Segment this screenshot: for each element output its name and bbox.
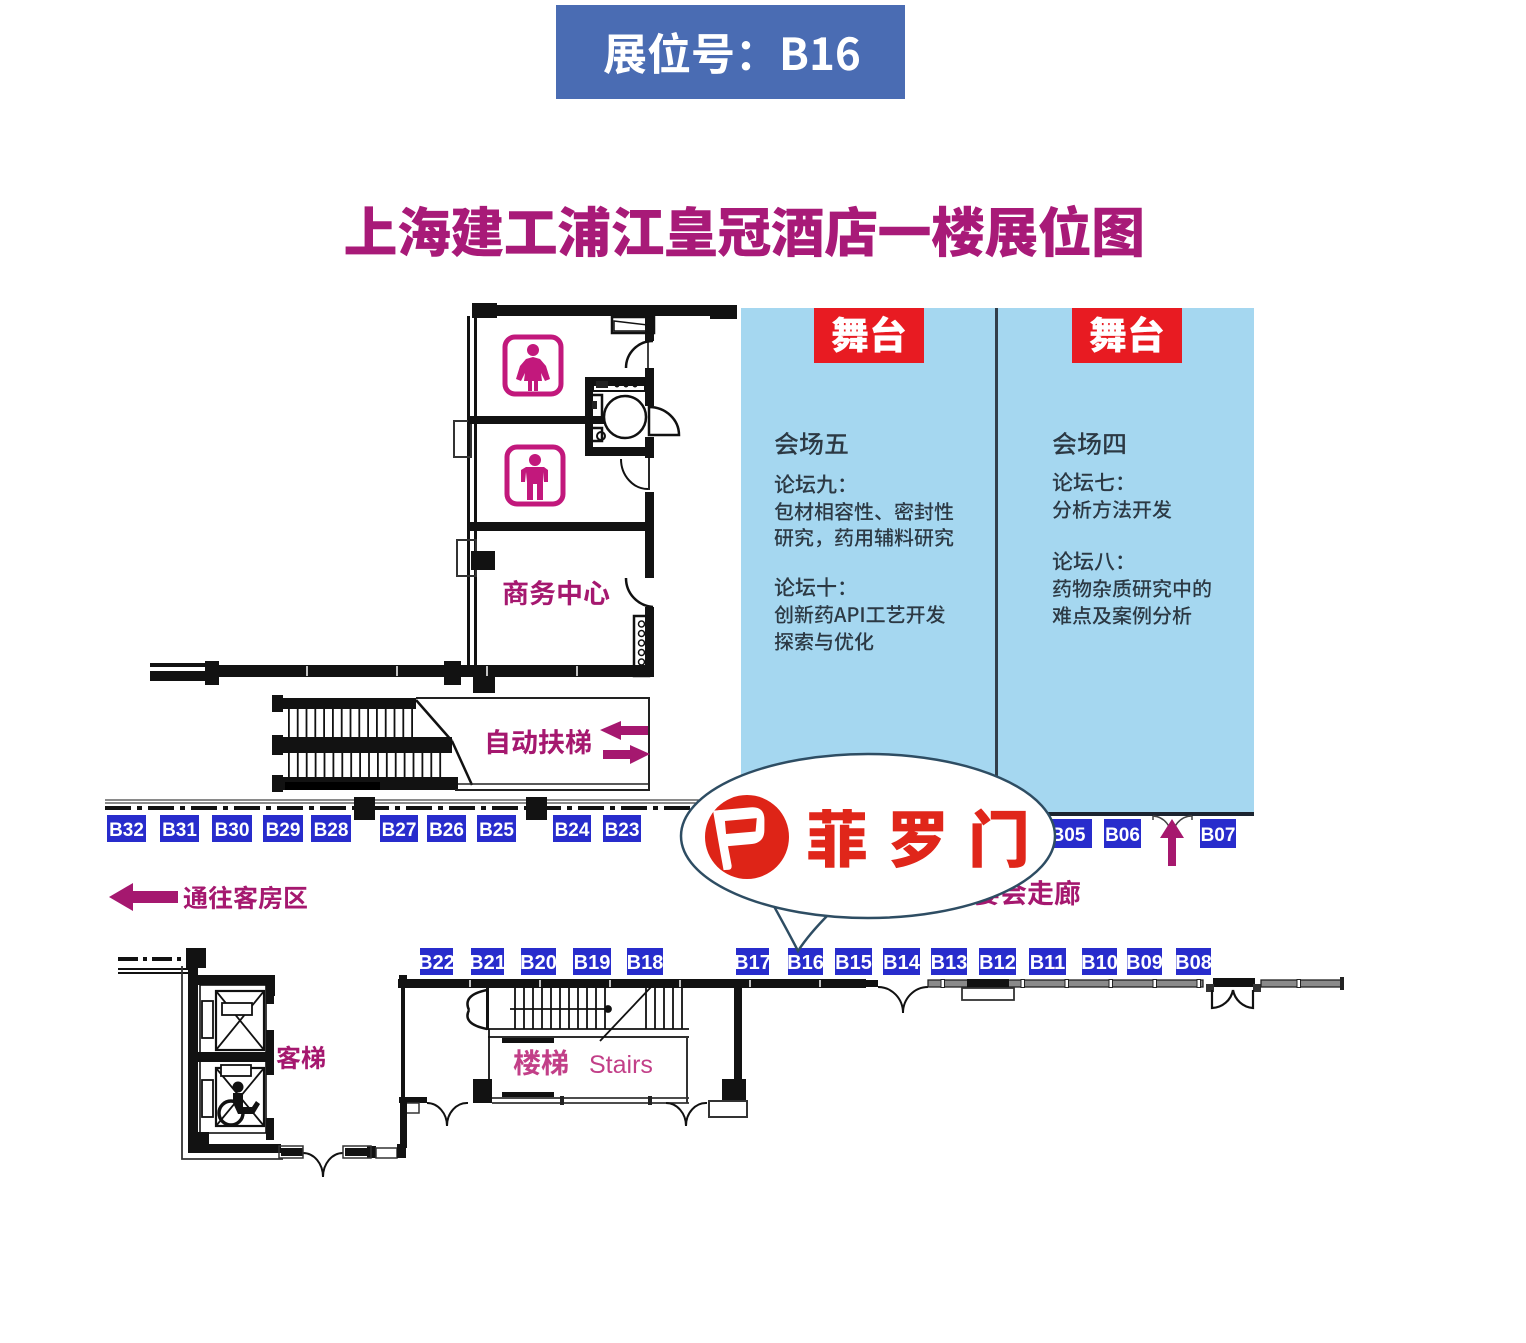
svg-text:B24: B24 <box>555 820 590 841</box>
svg-text:B11: B11 <box>1030 952 1066 974</box>
svg-text:B26: B26 <box>429 820 464 841</box>
svg-text:B27: B27 <box>382 820 417 841</box>
svg-text:B22: B22 <box>418 952 455 974</box>
svg-text:B14: B14 <box>883 952 921 974</box>
svg-text:B19: B19 <box>574 952 611 974</box>
svg-text:B09: B09 <box>1126 952 1163 974</box>
svg-text:B16: B16 <box>787 952 824 974</box>
svg-text:B17: B17 <box>734 952 771 974</box>
svg-text:B20: B20 <box>520 952 557 974</box>
svg-text:B29: B29 <box>266 820 301 841</box>
svg-text:Stairs: Stairs <box>589 1051 653 1079</box>
svg-text:B32: B32 <box>109 820 144 841</box>
svg-text:B25: B25 <box>479 820 514 841</box>
svg-text:B13: B13 <box>931 952 968 974</box>
svg-text:B21: B21 <box>469 952 506 974</box>
svg-text:B12: B12 <box>979 952 1016 974</box>
svg-text:B23: B23 <box>605 820 640 841</box>
svg-text:B10: B10 <box>1081 952 1118 974</box>
svg-text:B06: B06 <box>1105 825 1140 846</box>
svg-text:B28: B28 <box>314 820 349 841</box>
svg-text:B31: B31 <box>162 820 197 841</box>
svg-text:B15: B15 <box>835 952 872 974</box>
svg-text:B08: B08 <box>1175 952 1212 974</box>
svg-text:B18: B18 <box>627 952 664 974</box>
svg-text:B30: B30 <box>215 820 250 841</box>
svg-text:B07: B07 <box>1201 825 1236 846</box>
